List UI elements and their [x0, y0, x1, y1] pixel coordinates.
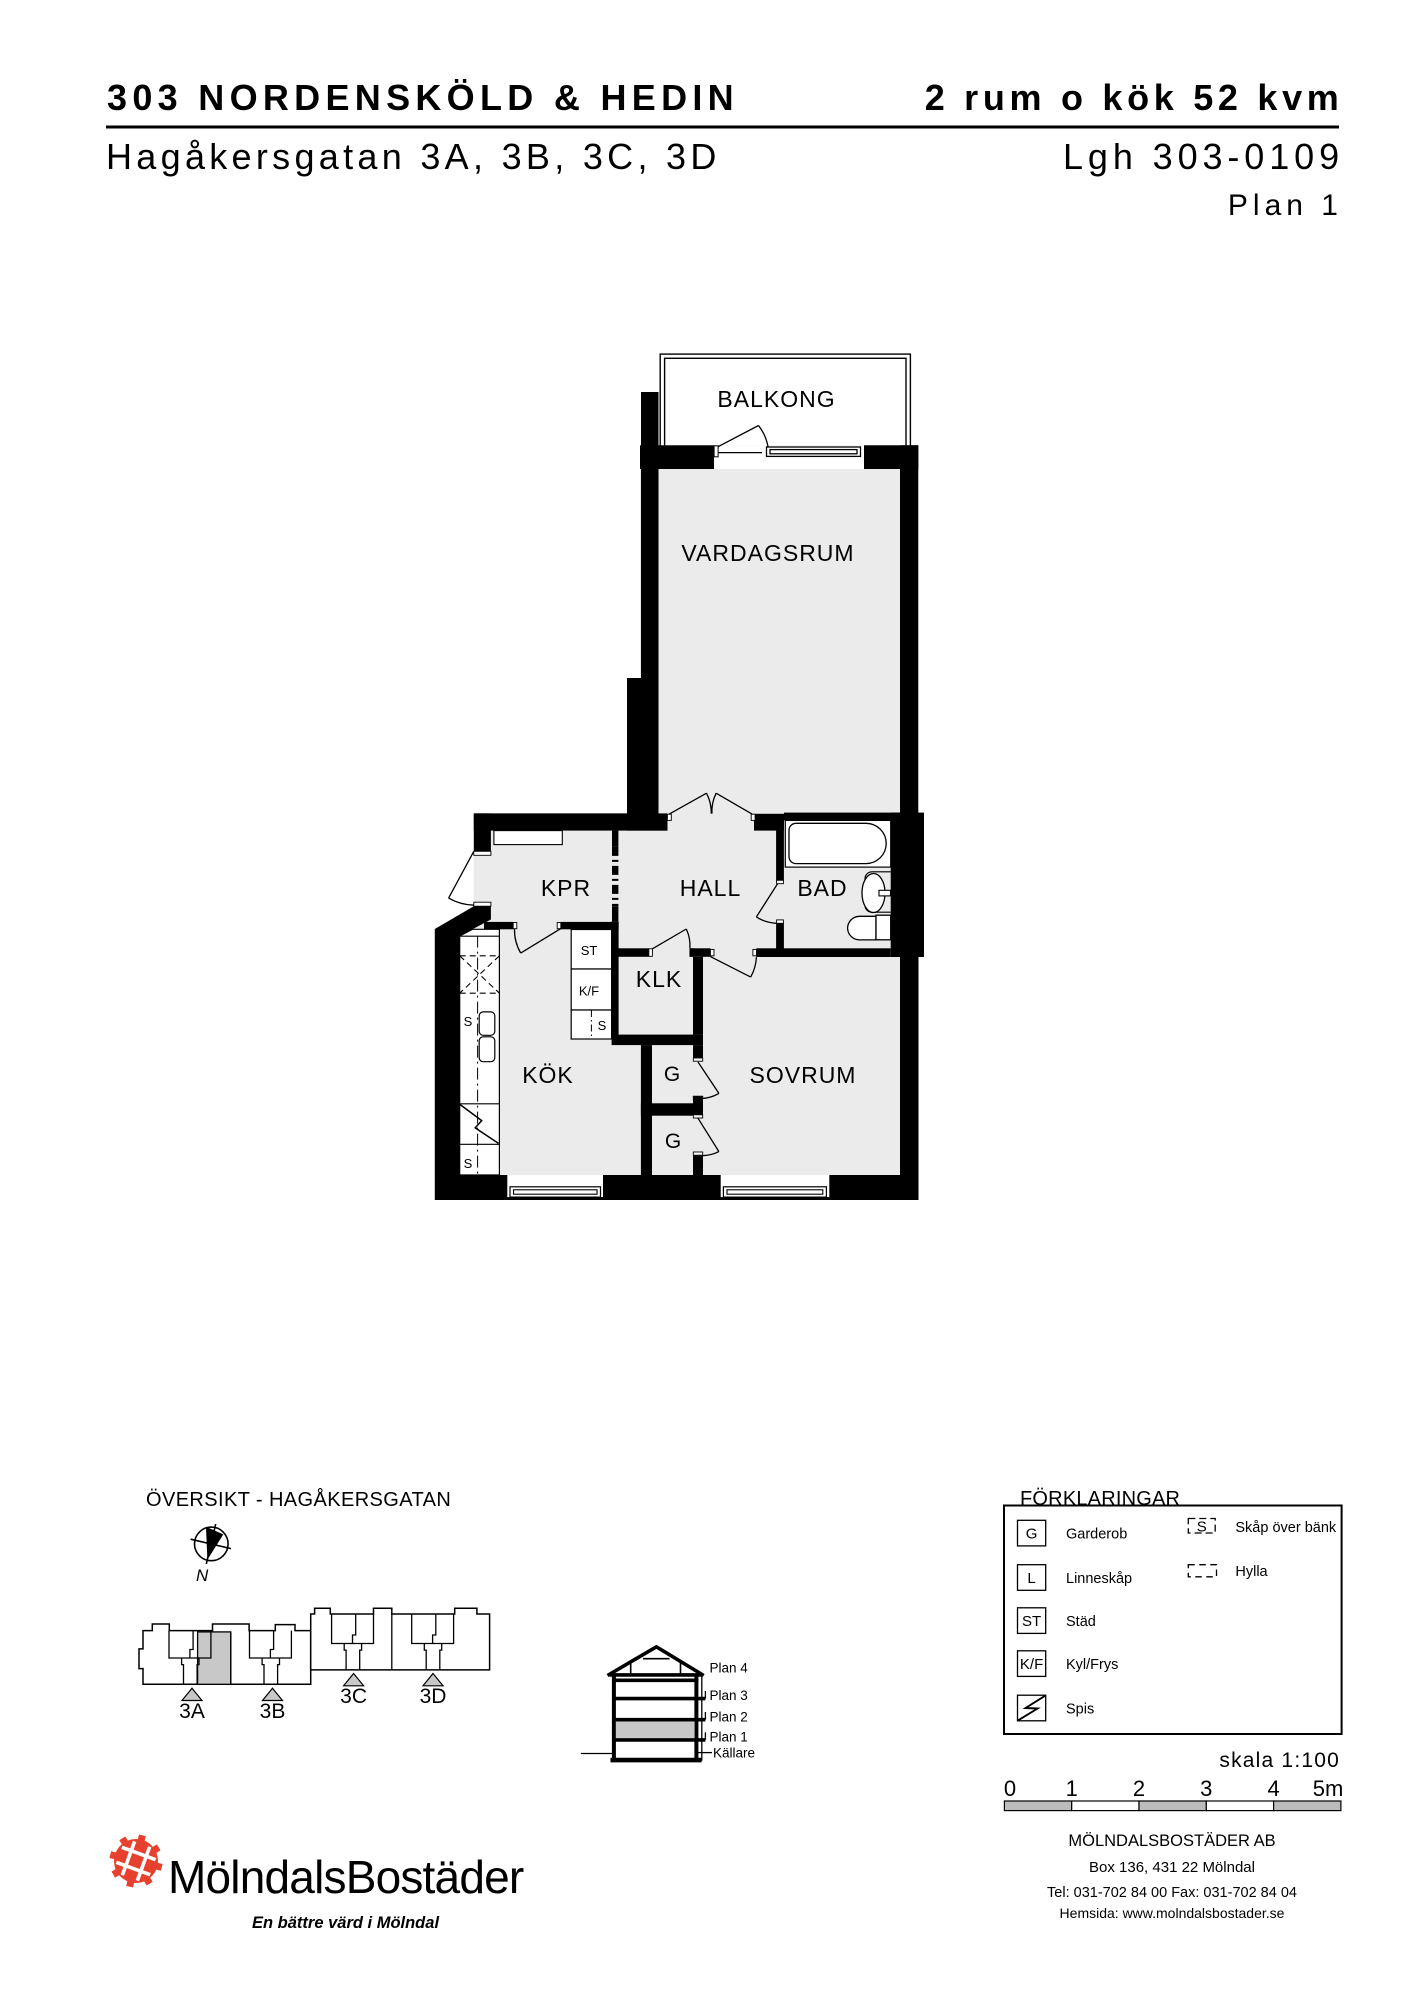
svg-text:3D: 3D	[420, 1685, 447, 1708]
svg-text:Plan 1: Plan 1	[710, 1730, 748, 1745]
svg-text:Tel: 031-702 84 00 Fax: 031: Tel: 031-702 84 00 Fax: 031-702 84 04	[1047, 1885, 1297, 1901]
svg-text:En bättre värd i Mölndal: En bättre värd i Mölndal	[252, 1914, 439, 1932]
svg-text:BALKONG: BALKONG	[717, 386, 835, 412]
svg-text:FÖRKLARINGAR: FÖRKLARINGAR	[1020, 1488, 1180, 1510]
svg-text:Plan 2: Plan 2	[710, 1710, 748, 1725]
svg-text:Hylla: Hylla	[1235, 1564, 1268, 1580]
svg-text:S: S	[1197, 1519, 1207, 1536]
svg-text:S: S	[464, 1156, 473, 1171]
svg-text:Hemsida: www.molndalsbostader.: Hemsida: www.molndalsbostader.se	[1060, 1905, 1285, 1921]
svg-text:5m: 5m	[1313, 1776, 1344, 1801]
svg-text:3A: 3A	[179, 1700, 205, 1723]
svg-text:MölndalsBostäder: MölndalsBostäder	[168, 1851, 524, 1903]
svg-text:L: L	[1027, 1570, 1035, 1587]
svg-text:Plan 3: Plan 3	[710, 1688, 748, 1703]
svg-text:KÖK: KÖK	[522, 1062, 574, 1088]
svg-text:Städ: Städ	[1066, 1614, 1096, 1630]
svg-text:0: 0	[1004, 1776, 1016, 1801]
svg-text:Plan 1: Plan 1	[1228, 189, 1343, 222]
svg-text:N: N	[196, 1566, 209, 1585]
svg-text:Box 136, 431 22 Mölndal: Box 136, 431 22 Mölndal	[1089, 1859, 1255, 1876]
svg-text:K/F: K/F	[579, 984, 599, 999]
svg-text:Spis: Spis	[1066, 1702, 1094, 1718]
svg-text:Lgh 303-0109: Lgh 303-0109	[1063, 136, 1344, 177]
svg-text:ST: ST	[581, 943, 598, 958]
svg-text:4: 4	[1267, 1776, 1279, 1801]
svg-text:3B: 3B	[260, 1700, 286, 1723]
svg-text:Garderob: Garderob	[1066, 1527, 1127, 1543]
svg-text:Källare: Källare	[713, 1746, 755, 1761]
svg-text:VARDAGSRUM: VARDAGSRUM	[681, 540, 854, 566]
svg-text:BAD: BAD	[797, 875, 847, 901]
svg-text:MÖLNDALSBOSTÄDER AB: MÖLNDALSBOSTÄDER AB	[1068, 1832, 1275, 1850]
svg-text:Skåp över bänk: Skåp över bänk	[1235, 1520, 1337, 1536]
svg-text:ST: ST	[1022, 1613, 1041, 1630]
svg-text:Hagåkersgatan 3A, 3B, 3C, 3D: Hagåkersgatan 3A, 3B, 3C, 3D	[106, 136, 721, 177]
svg-text:HALL: HALL	[680, 875, 742, 901]
svg-text:skala 1:100: skala 1:100	[1219, 1749, 1340, 1772]
svg-text:KPR: KPR	[541, 875, 591, 901]
svg-text:Plan 4: Plan 4	[710, 1661, 749, 1676]
svg-text:S: S	[464, 1014, 473, 1029]
svg-text:3C: 3C	[340, 1685, 367, 1708]
svg-text:G: G	[665, 1130, 681, 1153]
svg-text:Kyl/Frys: Kyl/Frys	[1066, 1657, 1118, 1673]
svg-text:2 rum o kök 52 kvm: 2 rum o kök 52 kvm	[925, 77, 1344, 118]
svg-text:ÖVERSIKT - HAGÅKERSGATAN: ÖVERSIKT - HAGÅKERSGATAN	[146, 1488, 451, 1511]
svg-text:K/F: K/F	[1020, 1656, 1043, 1673]
svg-text:SOVRUM: SOVRUM	[750, 1062, 857, 1088]
svg-text:1: 1	[1066, 1776, 1078, 1801]
svg-text:3: 3	[1200, 1776, 1212, 1801]
svg-text:2: 2	[1133, 1776, 1145, 1801]
svg-text:303 NORDENSKÖLD & HEDIN: 303 NORDENSKÖLD & HEDIN	[107, 77, 739, 118]
svg-text:Linneskåp: Linneskåp	[1066, 1571, 1132, 1587]
svg-text:KLK: KLK	[636, 966, 682, 992]
svg-text:S: S	[598, 1018, 607, 1033]
svg-text:G: G	[664, 1063, 680, 1086]
svg-text:G: G	[1026, 1526, 1038, 1543]
